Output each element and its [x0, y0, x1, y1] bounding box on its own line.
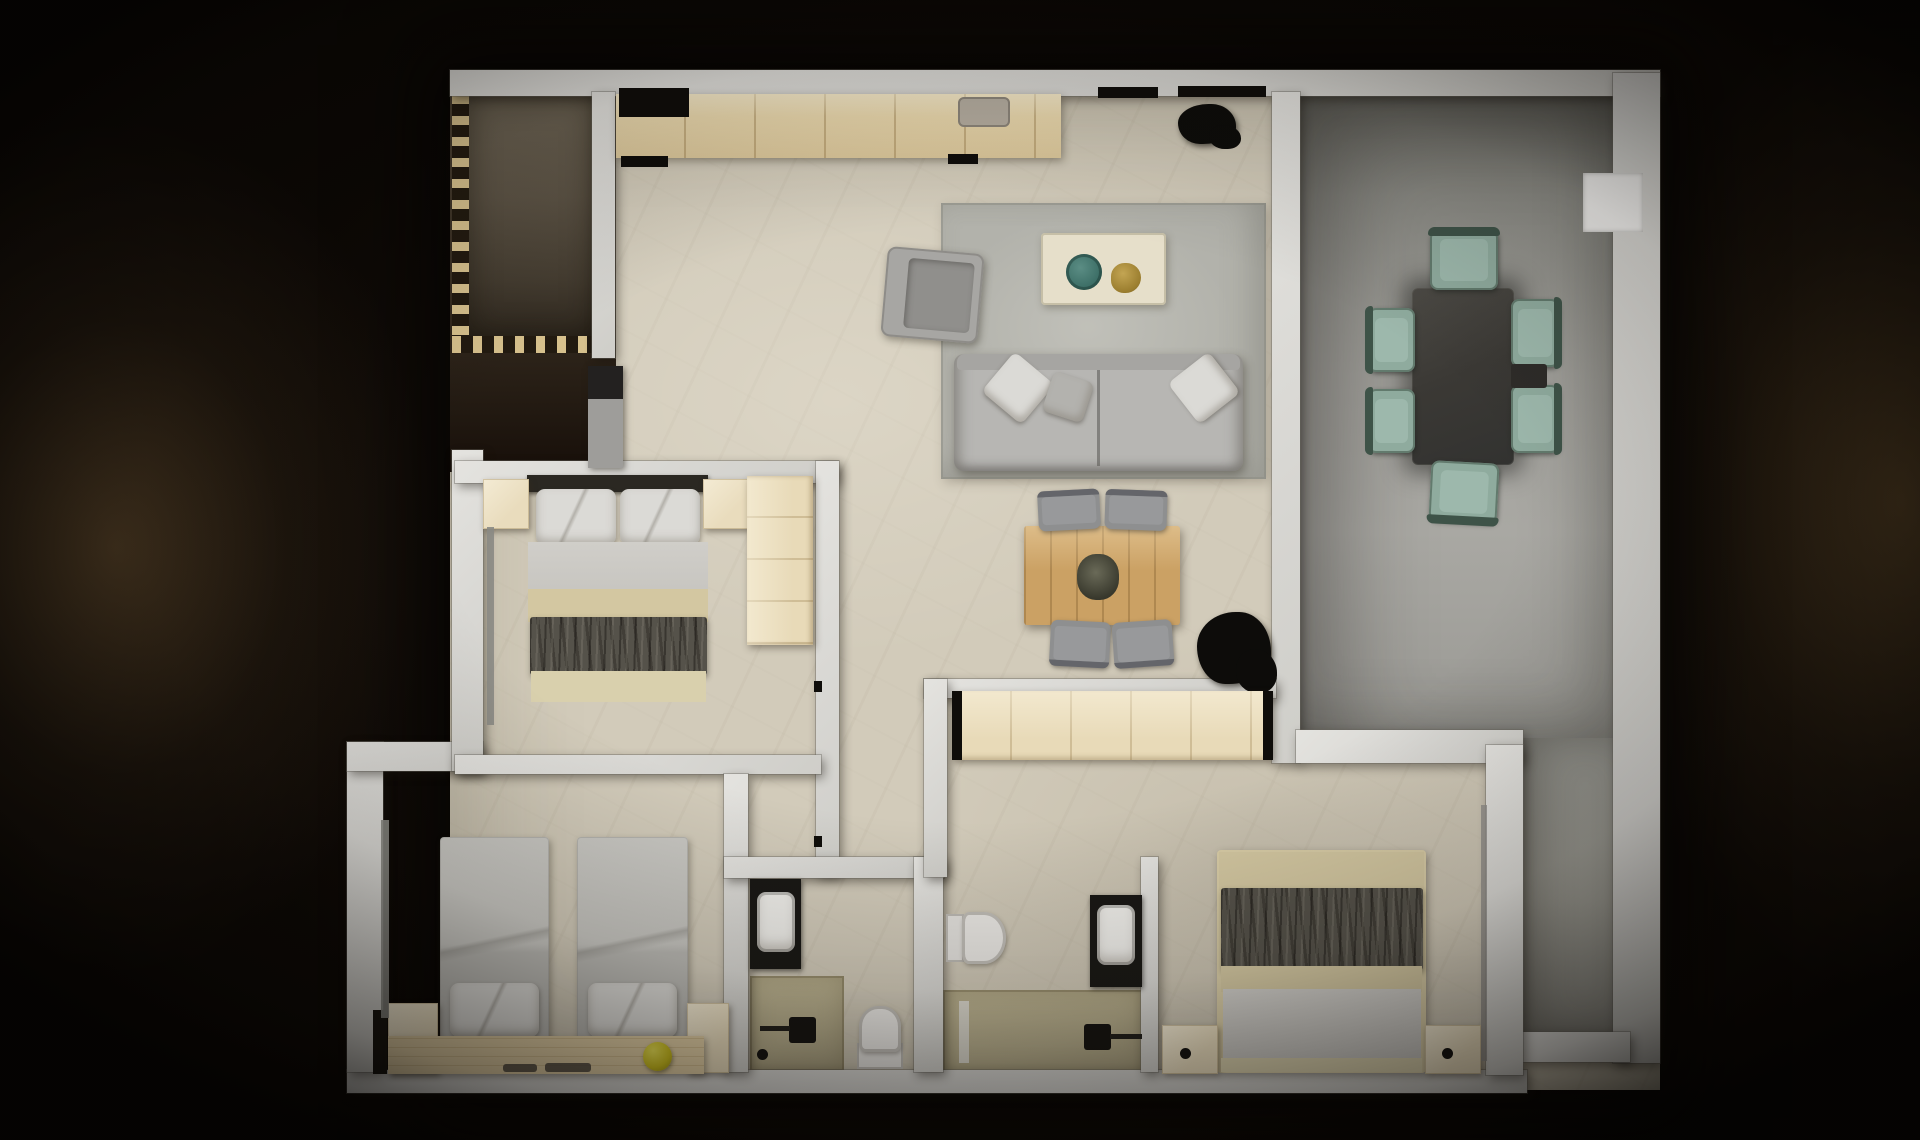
balcony-railing-bottom [452, 336, 594, 353]
dining-dark-piece [1511, 364, 1547, 388]
wall-bathrooms-middle [914, 857, 943, 1072]
bed1-pillow-right [620, 489, 700, 545]
bed2-left-pillow [450, 983, 539, 1037]
bed3-nightstand-right [1425, 1025, 1481, 1074]
wall-hallway-right [924, 679, 947, 877]
shower-tray-bath2 [943, 990, 1143, 1074]
bed1-nightstand-left [483, 479, 529, 529]
tall-gray-cabinet [588, 366, 623, 468]
wall-bathrooms-top [724, 857, 944, 878]
wall-bedroom1-right [816, 461, 839, 875]
table-centerpiece [1077, 554, 1119, 600]
bath2-shower-fixture [1084, 1024, 1111, 1050]
table-chair-bottom-left [1049, 619, 1111, 668]
coffee-table [1041, 233, 1166, 305]
table-chair-top-right [1104, 489, 1167, 531]
sofa-seam [1097, 370, 1100, 466]
bed1-nightstand-right [703, 479, 749, 529]
bed3-lamp-right [1442, 1048, 1453, 1059]
bath1-drain-dot [757, 1049, 768, 1060]
bed3-foot-rail [1221, 1058, 1422, 1072]
bed3-band-head [1219, 852, 1424, 891]
bed1-band-foot [531, 671, 706, 702]
screenshot-frame [0, 0, 1920, 1140]
bed2-right-pillow [588, 983, 677, 1037]
counter-shadow-left [621, 156, 668, 167]
bath2-toilet-bowl [962, 912, 1006, 964]
dining-chair-top [1430, 230, 1498, 290]
wall-bedroom1-bottom [455, 755, 821, 774]
door-hinge-lower [814, 836, 822, 847]
dining-chair-left-upper [1368, 308, 1415, 372]
bedroom2-radiator [373, 1010, 387, 1074]
counter-sink [958, 97, 1010, 127]
wall-living-dining [1272, 92, 1300, 763]
bath1-toilet-bowl [859, 1006, 901, 1052]
bath1-basin [757, 892, 795, 952]
window-dining [1583, 173, 1643, 232]
counter-shadow-right [948, 154, 978, 164]
black-plant-blob [1197, 612, 1271, 684]
wall-bottom-right [1520, 1032, 1630, 1062]
apartment-floorplan [0, 0, 1920, 1140]
door-opening-top-mid [1098, 87, 1158, 98]
table-chair-bottom-right [1111, 619, 1174, 669]
balcony-railing-left [452, 95, 469, 353]
door-hinge-upper [814, 681, 822, 692]
yellow-ball [643, 1042, 672, 1071]
door-opening-top-right [1178, 86, 1266, 97]
bedroom3-wall-shadow [1481, 805, 1487, 1061]
bath2-shower-arm [1110, 1034, 1142, 1039]
dining-table [1412, 288, 1514, 465]
armchair [880, 246, 984, 344]
wall-bedroom3-left [1141, 857, 1158, 1072]
wall-balcony-right [592, 92, 615, 358]
bath1-shower-fixture [789, 1017, 816, 1043]
bed1-pillow-left [536, 489, 616, 545]
wall-bedroom3-right [1486, 745, 1523, 1075]
bench-leg-mark-right [545, 1063, 591, 1072]
bedroom2-curtain [381, 820, 389, 1018]
wardrobe-end-cap-left [952, 691, 962, 760]
bed1-sheet [528, 542, 708, 594]
wardrobe-end-cap-right [1263, 691, 1273, 760]
bath1-shower-arm [760, 1026, 790, 1031]
dining-chair-right-lower [1511, 385, 1559, 453]
dining-chair-right-upper [1511, 299, 1559, 367]
bath2-glass-sliver [959, 1001, 969, 1063]
bedroom1-wardrobe [747, 476, 813, 645]
bench-leg-mark-left [503, 1064, 537, 1072]
bed1-blanket [530, 617, 707, 675]
balcony-floor [468, 95, 594, 338]
dining-chair-bottom [1428, 460, 1499, 523]
bedroom1-curtain [487, 527, 494, 725]
wall-left-upper [452, 450, 483, 771]
door-opening-top-left [619, 88, 689, 117]
teal-plate [1066, 254, 1102, 290]
bed3-lamp-left [1180, 1048, 1191, 1059]
bedroom3-wardrobe [952, 691, 1273, 760]
dining-chair-left-lower [1368, 389, 1415, 453]
bath2-basin [1097, 905, 1135, 965]
black-decor-blob [1178, 104, 1236, 144]
bed3-blanket [1221, 888, 1423, 970]
bed3-sheet [1223, 989, 1421, 1063]
dining-floor-strip [1520, 738, 1615, 1034]
table-chair-top-left [1037, 488, 1101, 531]
